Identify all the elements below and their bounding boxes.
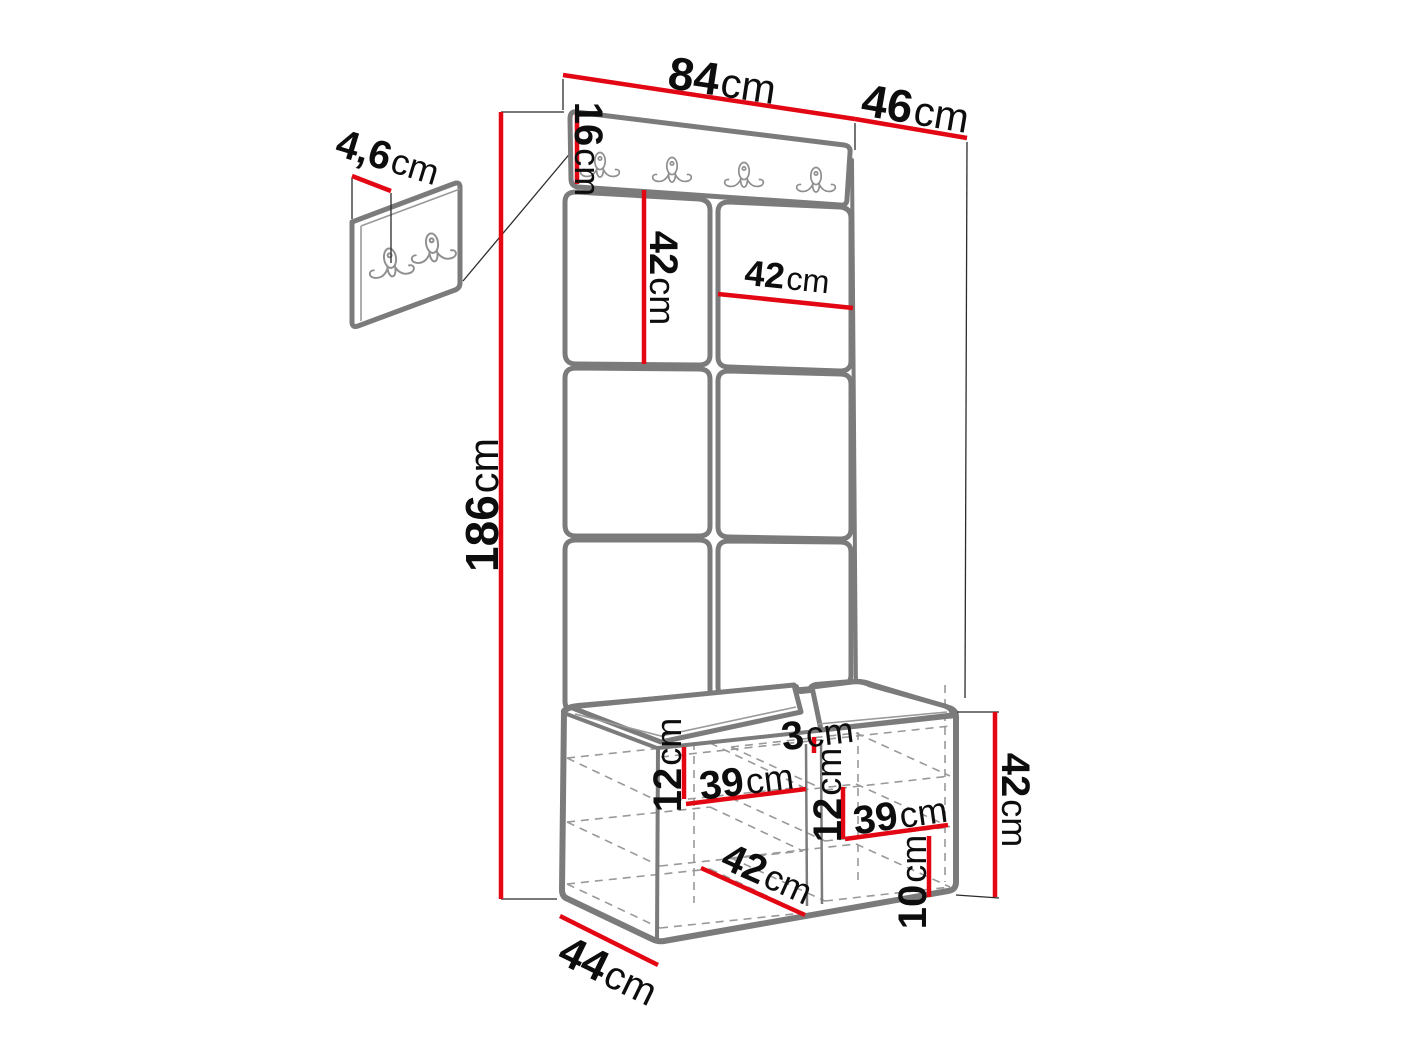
label-shelf-gap-right: 12cm (806, 748, 850, 843)
label-bench-height: 42cm (993, 753, 1037, 848)
label-shelf-gap-left: 12cm (646, 718, 690, 813)
upholstered-panel (718, 371, 851, 539)
label-top-depth: 46cm (858, 74, 974, 143)
label-plinth-height: 10cm (891, 835, 935, 930)
label-inset-thickness: 4,6cm (331, 121, 445, 194)
upholstered-panel (718, 202, 851, 371)
diagram-canvas: 84cm 46cm 16cm 4,6cm 186cm 42cm 42cm 3cm… (0, 0, 1408, 1056)
inset-hook-panel (352, 183, 460, 327)
label-top-width: 84cm (665, 46, 780, 114)
upholstered-panel (565, 540, 710, 711)
upholstered-panel (718, 541, 851, 696)
label-tile-height: 42cm (641, 231, 685, 326)
extension-line (956, 895, 999, 898)
upholstered-panel (565, 192, 710, 365)
extension-line (965, 142, 967, 698)
hook-rail (570, 112, 850, 205)
label-total-height: 186cm (456, 438, 508, 572)
furniture-dimension-drawing: 84cm 46cm 16cm 4,6cm 186cm 42cm 42cm 3cm… (0, 0, 1408, 1056)
inset-leader-line (463, 151, 572, 281)
dimension-line-4-6cm (352, 176, 391, 191)
upholstered-panel (565, 368, 710, 536)
label-rail-height: 16cm (566, 102, 610, 197)
hook-rail-board (570, 112, 850, 205)
